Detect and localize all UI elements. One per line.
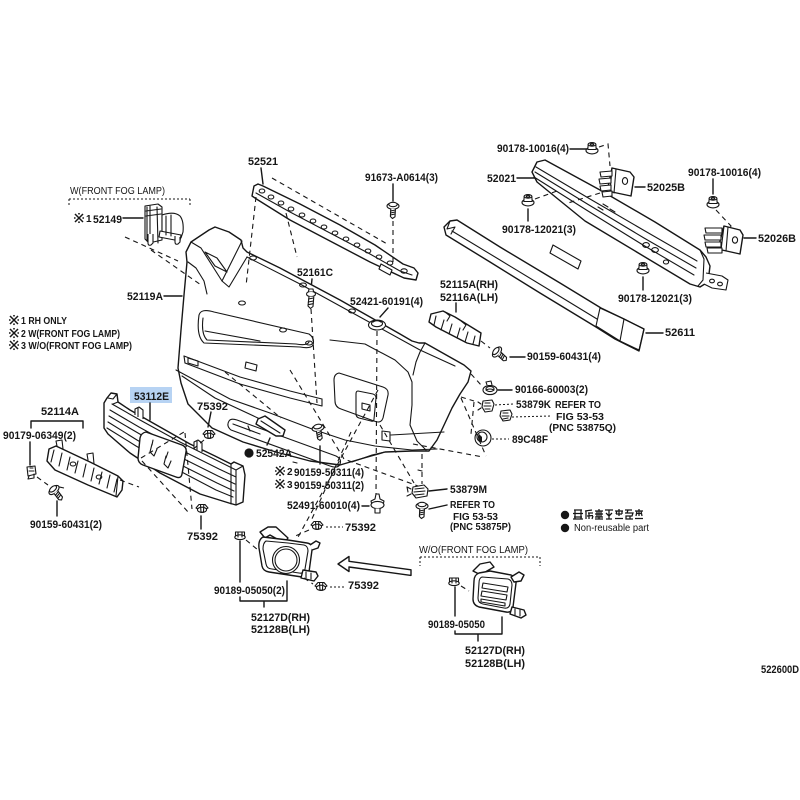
svg-text:90179-06349(2): 90179-06349(2)	[3, 430, 76, 442]
svg-text:Non-reusable part: Non-reusable part	[574, 523, 649, 534]
svg-text:52115A(RH): 52115A(RH)	[440, 279, 498, 291]
svg-text:52611: 52611	[665, 327, 695, 339]
svg-text:W(FRONT FOG LAMP): W(FRONT FOG LAMP)	[70, 186, 165, 197]
svg-text:90159-50311(4): 90159-50311(4)	[294, 467, 364, 479]
svg-text:91673-A0614(3): 91673-A0614(3)	[365, 172, 438, 184]
svg-text:2 W(FRONT FOG LAMP): 2 W(FRONT FOG LAMP)	[21, 329, 120, 340]
svg-text:90178-12021(3): 90178-12021(3)	[502, 224, 576, 236]
svg-text:52491-60010(4): 52491-60010(4)	[287, 500, 360, 512]
svg-text:75392: 75392	[187, 531, 218, 543]
svg-text:53112E: 53112E	[134, 391, 169, 403]
svg-text:FIG 53-53: FIG 53-53	[556, 412, 604, 423]
svg-text:52161C: 52161C	[297, 267, 333, 279]
svg-text:522600D: 522600D	[761, 664, 799, 676]
svg-text:52128B(LH): 52128B(LH)	[251, 624, 310, 636]
svg-text:52021: 52021	[487, 173, 516, 185]
svg-text:90159-50311(2): 90159-50311(2)	[294, 480, 364, 492]
svg-text:52127D(RH): 52127D(RH)	[465, 645, 525, 657]
svg-text:52119A: 52119A	[127, 291, 163, 303]
svg-text:52026B: 52026B	[758, 233, 796, 245]
svg-text:(PNC 53875P): (PNC 53875P)	[450, 522, 511, 533]
svg-text:90189-05050: 90189-05050	[428, 619, 485, 631]
svg-text:52127D(RH): 52127D(RH)	[251, 612, 310, 624]
svg-text:90159-60431(4): 90159-60431(4)	[527, 351, 601, 363]
svg-text:52421-60191(4): 52421-60191(4)	[350, 296, 423, 308]
svg-text:90159-60431(2): 90159-60431(2)	[30, 519, 102, 531]
svg-text:2: 2	[287, 467, 293, 478]
svg-text:W/O(FRONT FOG LAMP): W/O(FRONT FOG LAMP)	[419, 545, 528, 556]
svg-text:52025B: 52025B	[647, 182, 685, 194]
svg-text:90166-60003(2): 90166-60003(2)	[515, 384, 588, 396]
svg-text:REFER TO: REFER TO	[450, 500, 495, 511]
svg-text:1: 1	[86, 214, 92, 225]
svg-text:75392: 75392	[348, 580, 379, 592]
svg-text:(PNC 53875Q): (PNC 53875Q)	[549, 423, 616, 434]
svg-text:52114A: 52114A	[41, 406, 79, 418]
svg-text:75392: 75392	[345, 522, 376, 534]
svg-text:52128B(LH): 52128B(LH)	[465, 658, 525, 670]
svg-text:3: 3	[287, 480, 293, 491]
svg-text:1 RH ONLY: 1 RH ONLY	[21, 316, 67, 327]
svg-text:53879M: 53879M	[450, 484, 487, 496]
svg-text:REFER TO: REFER TO	[555, 400, 601, 411]
svg-text:52116A(LH): 52116A(LH)	[440, 292, 498, 304]
svg-text:75392: 75392	[197, 401, 228, 413]
svg-text:53879K: 53879K	[516, 399, 551, 411]
svg-text:52521: 52521	[248, 156, 278, 168]
svg-text:52149: 52149	[93, 214, 122, 226]
svg-text:90178-12021(3): 90178-12021(3)	[618, 293, 692, 305]
svg-text:52542A: 52542A	[256, 448, 292, 460]
svg-text:90178-10016(4): 90178-10016(4)	[497, 143, 569, 155]
svg-text:90189-05050(2): 90189-05050(2)	[214, 585, 285, 597]
svg-text:90178-10016(4): 90178-10016(4)	[688, 167, 761, 179]
svg-text:89C48F: 89C48F	[512, 434, 548, 446]
svg-text:3 W/O(FRONT FOG LAMP): 3 W/O(FRONT FOG LAMP)	[21, 341, 132, 352]
